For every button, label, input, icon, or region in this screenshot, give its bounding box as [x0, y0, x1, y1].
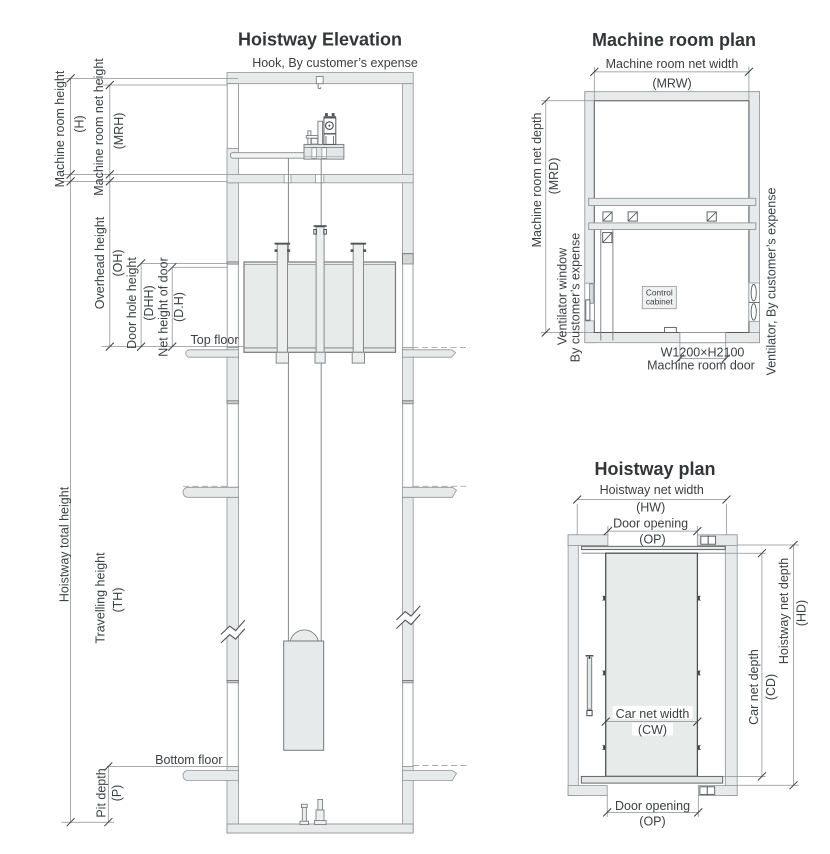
svg-text:Ventilator, By customer’s expe: Ventilator, By customer’s expense: [765, 188, 779, 376]
svg-text:By customer’s expense: By customer’s expense: [568, 233, 582, 363]
svg-text:Hoistway total height: Hoistway total height: [58, 486, 72, 602]
svg-text:(D.H): (D.H): [172, 292, 186, 322]
svg-text:Pit depth: Pit depth: [94, 768, 108, 817]
svg-text:(MRH): (MRH): [112, 113, 126, 150]
svg-text:Car net width: Car net width: [616, 707, 690, 721]
svg-text:Machine room plan: Machine room plan: [592, 30, 756, 50]
svg-text:(TH): (TH): [111, 588, 125, 613]
svg-text:(OH): (OH): [111, 249, 125, 276]
svg-text:Machine room net depth: Machine room net depth: [530, 113, 544, 248]
svg-text:Machine room net height: Machine room net height: [92, 58, 106, 196]
svg-text:(P): (P): [110, 785, 124, 802]
svg-text:Top floor: Top floor: [191, 333, 239, 347]
svg-text:(DHH): (DHH): [142, 285, 156, 320]
svg-text:Hook, By customer’s expense: Hook, By customer’s expense: [252, 56, 418, 70]
svg-text:W1200×H2100: W1200×H2100: [661, 346, 745, 360]
svg-text:Machine room net width: Machine room net width: [606, 57, 739, 71]
svg-text:Door opening: Door opening: [615, 799, 690, 813]
svg-text:cabinet: cabinet: [646, 297, 673, 307]
svg-text:Hoistway net width: Hoistway net width: [600, 483, 704, 497]
svg-text:Machine room door: Machine room door: [647, 359, 755, 373]
svg-text:(HD): (HD): [795, 600, 809, 626]
svg-text:(OP): (OP): [639, 814, 665, 828]
svg-text:Door hole height: Door hole height: [125, 257, 139, 349]
svg-text:(MRW): (MRW): [652, 77, 691, 91]
svg-text:Car net depth: Car net depth: [747, 649, 761, 725]
svg-text:(CW): (CW): [638, 723, 667, 737]
svg-text:(H): (H): [72, 115, 86, 132]
svg-text:Door opening: Door opening: [613, 517, 688, 531]
svg-text:Hoistway plan: Hoistway plan: [594, 459, 715, 479]
svg-text:Machine room height: Machine room height: [53, 70, 67, 187]
svg-text:(HW): (HW): [636, 501, 665, 515]
svg-text:(MRD): (MRD): [547, 158, 561, 195]
svg-text:Hoistway net depth: Hoistway net depth: [777, 558, 791, 664]
svg-text:Bottom floor: Bottom floor: [155, 753, 222, 767]
svg-text:(CD): (CD): [764, 674, 778, 700]
svg-text:Net height of door: Net height of door: [156, 257, 170, 356]
svg-text:Overhead height: Overhead height: [93, 216, 107, 309]
svg-text:Hoistway Elevation: Hoistway Elevation: [238, 30, 402, 50]
svg-text:Travelling height: Travelling height: [94, 552, 108, 644]
svg-text:(OP): (OP): [639, 533, 665, 547]
